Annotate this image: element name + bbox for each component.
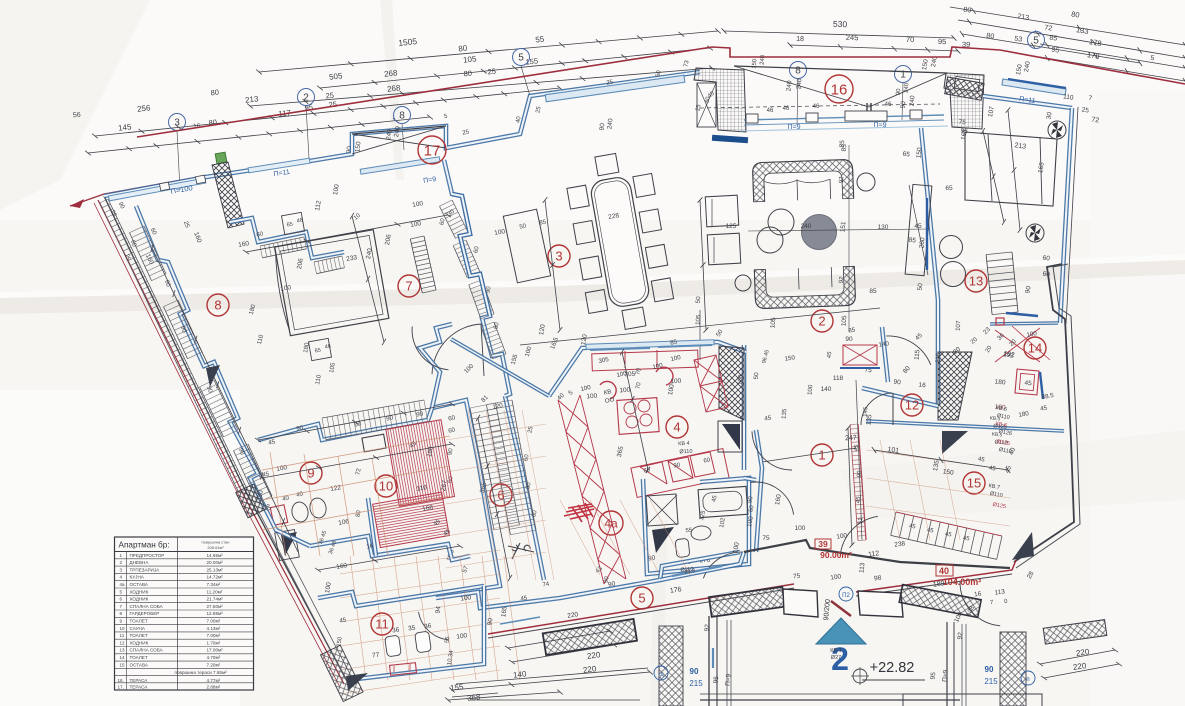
svg-text:80: 80 bbox=[1071, 9, 1081, 19]
svg-text:46: 46 bbox=[813, 104, 820, 110]
svg-text:100: 100 bbox=[586, 393, 598, 401]
svg-text:+22.82: +22.82 bbox=[870, 660, 915, 676]
svg-text:ПРЕДПРОСТОР: ПРЕДПРОСТОР bbox=[130, 553, 165, 558]
svg-text:45: 45 bbox=[856, 496, 863, 504]
svg-text:11: 11 bbox=[120, 633, 125, 638]
svg-text:10: 10 bbox=[120, 626, 126, 631]
svg-text:95: 95 bbox=[938, 37, 947, 46]
svg-text:268: 268 bbox=[384, 68, 399, 78]
svg-text:гд: гд bbox=[658, 672, 664, 678]
svg-text:8: 8 bbox=[120, 611, 123, 616]
svg-text:92: 92 bbox=[839, 276, 846, 284]
svg-text:220: 220 bbox=[586, 650, 601, 661]
svg-text:260: 260 bbox=[919, 237, 927, 249]
svg-text:2: 2 bbox=[303, 93, 309, 104]
svg-text:113: 113 bbox=[994, 588, 1006, 596]
svg-text:40: 40 bbox=[939, 566, 949, 576]
svg-text:САУНА: САУНА bbox=[130, 626, 146, 631]
svg-text:240: 240 bbox=[801, 223, 812, 230]
svg-text:65: 65 bbox=[902, 151, 911, 159]
svg-text:56: 56 bbox=[73, 112, 82, 120]
svg-text:1: 1 bbox=[120, 553, 123, 558]
svg-text:15: 15 bbox=[120, 662, 126, 667]
svg-text:35: 35 bbox=[408, 624, 417, 632]
svg-text:СПАЛНА СОБА: СПАЛНА СОБА bbox=[130, 648, 164, 653]
svg-text:215: 215 bbox=[984, 677, 998, 686]
svg-text:46: 46 bbox=[324, 344, 331, 351]
svg-text:92: 92 bbox=[704, 624, 712, 632]
svg-text:90: 90 bbox=[893, 379, 901, 387]
svg-text:4: 4 bbox=[673, 420, 680, 435]
svg-text:150: 150 bbox=[784, 354, 796, 362]
svg-text:155: 155 bbox=[450, 682, 465, 692]
svg-text:85: 85 bbox=[839, 140, 847, 148]
svg-text:9: 9 bbox=[307, 466, 314, 481]
svg-text:85: 85 bbox=[869, 288, 877, 295]
svg-text:240: 240 bbox=[904, 82, 911, 93]
svg-text:240: 240 bbox=[909, 95, 917, 107]
svg-text:ТОАЛЕТ: ТОАЛЕТ bbox=[130, 633, 148, 638]
svg-text:ХОДНИК: ХОДНИК bbox=[130, 597, 149, 602]
svg-text:150: 150 bbox=[916, 147, 924, 159]
svg-text:17: 17 bbox=[424, 142, 441, 159]
svg-text:245: 245 bbox=[846, 33, 859, 42]
svg-text:16: 16 bbox=[974, 590, 983, 598]
svg-text:100: 100 bbox=[807, 384, 815, 395]
svg-text:80: 80 bbox=[986, 32, 995, 40]
svg-text:95: 95 bbox=[1051, 46, 1060, 54]
svg-text:СПАЛНА СОБА: СПАЛНА СОБА bbox=[130, 604, 164, 609]
svg-text:16.: 16. bbox=[118, 678, 124, 683]
svg-text:3: 3 bbox=[555, 249, 562, 264]
svg-text:180: 180 bbox=[994, 379, 1006, 387]
svg-text:104.00m²: 104.00m² bbox=[943, 577, 982, 587]
svg-text:14.65м²: 14.65м² bbox=[207, 553, 224, 558]
svg-text:7: 7 bbox=[120, 604, 123, 609]
svg-text:90: 90 bbox=[985, 665, 994, 674]
svg-text:46: 46 bbox=[767, 108, 774, 114]
svg-text:135: 135 bbox=[866, 414, 874, 426]
svg-text:36: 36 bbox=[392, 626, 401, 634]
svg-text:4.13м²: 4.13м² bbox=[207, 626, 221, 631]
svg-text:90: 90 bbox=[487, 617, 495, 626]
svg-text:100: 100 bbox=[670, 378, 682, 386]
svg-text:5: 5 bbox=[638, 591, 645, 606]
svg-text:5: 5 bbox=[120, 589, 123, 594]
svg-text:72: 72 bbox=[1044, 24, 1053, 32]
svg-text:60: 60 bbox=[1042, 255, 1051, 263]
svg-text:13: 13 bbox=[969, 274, 983, 289]
svg-text:50: 50 bbox=[753, 372, 761, 380]
svg-text:55: 55 bbox=[535, 35, 545, 45]
svg-text:ТЕРАСА: ТЕРАСА bbox=[130, 678, 149, 683]
svg-text:17.00м²: 17.00м² bbox=[207, 648, 224, 653]
svg-text:72: 72 bbox=[1091, 116, 1100, 124]
svg-text:П2: П2 bbox=[842, 593, 850, 599]
svg-text:80: 80 bbox=[458, 44, 468, 54]
svg-text:8: 8 bbox=[214, 298, 221, 313]
svg-text:90: 90 bbox=[900, 101, 908, 109]
svg-text:25.13м²: 25.13м² bbox=[207, 567, 224, 572]
svg-text:4а: 4а bbox=[120, 582, 126, 587]
svg-text:505: 505 bbox=[329, 71, 344, 81]
svg-text:65: 65 bbox=[314, 348, 321, 355]
svg-text:21.74м²: 21.74м² bbox=[207, 597, 224, 602]
svg-text:140: 140 bbox=[513, 669, 528, 679]
svg-text:98: 98 bbox=[874, 574, 883, 582]
svg-text:површина стан: површина стан bbox=[202, 540, 230, 545]
svg-text:90: 90 bbox=[845, 336, 853, 343]
svg-text:247: 247 bbox=[845, 435, 857, 443]
svg-text:75: 75 bbox=[958, 119, 966, 127]
svg-text:Ø110: Ø110 bbox=[679, 449, 692, 456]
svg-text:53: 53 bbox=[1014, 35, 1023, 43]
svg-text:50: 50 bbox=[695, 296, 703, 304]
svg-text:7.00м²: 7.00м² bbox=[207, 633, 221, 638]
svg-text:213: 213 bbox=[245, 94, 260, 104]
svg-text:7.20м²: 7.20м² bbox=[207, 662, 221, 667]
svg-text:25: 25 bbox=[325, 91, 334, 101]
svg-text:11.20м²: 11.20м² bbox=[207, 589, 223, 594]
svg-text:145: 145 bbox=[118, 122, 133, 132]
svg-text:површина тераси 7.65м²: површина тераси 7.65м² bbox=[175, 670, 228, 675]
svg-text:7.34м²: 7.34м² bbox=[207, 582, 221, 587]
svg-text:8: 8 bbox=[399, 111, 405, 122]
svg-text:50: 50 bbox=[917, 283, 925, 291]
svg-text:7.00м²: 7.00м² bbox=[207, 619, 221, 624]
svg-text:5: 5 bbox=[518, 53, 524, 64]
svg-text:ТОАЛЕТ: ТОАЛЕТ bbox=[130, 655, 148, 660]
svg-text:ТРПЕЗАРИЈА: ТРПЕЗАРИЈА bbox=[130, 567, 161, 572]
svg-text:4.70м²: 4.70м² bbox=[207, 655, 221, 660]
svg-text:п: п bbox=[1026, 677, 1029, 683]
svg-text:220: 220 bbox=[582, 664, 597, 675]
svg-text:25: 25 bbox=[328, 100, 337, 110]
svg-text:ГАРДЕРОБЕР: ГАРДЕРОБЕР bbox=[130, 611, 160, 616]
svg-text:90.00m²: 90.00m² bbox=[820, 550, 852, 560]
svg-text:92: 92 bbox=[839, 176, 846, 184]
svg-text:КВ 4: КВ 4 bbox=[678, 441, 690, 448]
svg-text:80: 80 bbox=[463, 69, 472, 79]
svg-text:П=9: П=9 bbox=[941, 669, 949, 682]
svg-text:4: 4 bbox=[120, 575, 123, 580]
svg-text:530: 530 bbox=[833, 19, 848, 29]
svg-text:1: 1 bbox=[818, 448, 825, 463]
svg-text:46: 46 bbox=[296, 218, 303, 225]
svg-text:12: 12 bbox=[905, 398, 919, 413]
svg-text:60: 60 bbox=[1042, 271, 1051, 279]
svg-text:208.64м²: 208.64м² bbox=[207, 545, 224, 550]
svg-text:ТОАЛЕТ: ТОАЛЕТ bbox=[130, 619, 148, 624]
svg-text:1505: 1505 bbox=[398, 36, 418, 48]
svg-text:25: 25 bbox=[487, 67, 496, 77]
svg-text:25: 25 bbox=[1081, 106, 1090, 114]
svg-text:14: 14 bbox=[1028, 341, 1042, 356]
svg-text:12: 12 bbox=[120, 640, 126, 645]
svg-text:П=9: П=9 bbox=[787, 124, 800, 131]
svg-text:17.: 17. bbox=[118, 685, 124, 690]
svg-text:П=9: П=9 bbox=[873, 122, 886, 129]
svg-text:27.50м²: 27.50м² bbox=[207, 604, 224, 609]
svg-text:240: 240 bbox=[786, 80, 794, 92]
svg-text:15: 15 bbox=[967, 476, 981, 491]
svg-text:118: 118 bbox=[833, 375, 844, 382]
svg-text:80: 80 bbox=[210, 88, 219, 98]
svg-text:КВ.1: КВ.1 bbox=[830, 648, 841, 654]
svg-text:ОСТАВА: ОСТАВА bbox=[130, 662, 149, 667]
svg-text:3: 3 bbox=[120, 567, 123, 572]
svg-text:90: 90 bbox=[690, 667, 699, 676]
svg-text:100: 100 bbox=[619, 387, 631, 395]
svg-text:16: 16 bbox=[831, 81, 848, 98]
svg-text:46: 46 bbox=[885, 102, 892, 108]
svg-text:4.77м²: 4.77м² bbox=[207, 678, 221, 683]
svg-text:105: 105 bbox=[841, 315, 849, 327]
svg-text:20.00м²: 20.00м² bbox=[207, 560, 224, 565]
svg-text:105: 105 bbox=[463, 54, 478, 64]
svg-text:105: 105 bbox=[695, 314, 703, 325]
svg-text:6: 6 bbox=[120, 597, 123, 602]
svg-text:1.70м²: 1.70м² bbox=[207, 640, 221, 645]
svg-text:ОСТАВА: ОСТАВА bbox=[130, 582, 149, 587]
svg-text:90: 90 bbox=[599, 123, 607, 131]
svg-text:85: 85 bbox=[1049, 34, 1058, 42]
svg-text:39: 39 bbox=[818, 539, 828, 549]
svg-text:18: 18 bbox=[796, 36, 804, 43]
svg-text:5: 5 bbox=[1033, 36, 1039, 47]
svg-text:14.72м²: 14.72м² bbox=[207, 575, 224, 580]
svg-text:151: 151 bbox=[840, 221, 848, 233]
svg-text:ХОДНИК: ХОДНИК bbox=[130, 589, 149, 594]
svg-text:П=9: П=9 bbox=[724, 673, 732, 686]
svg-text:Ø27: Ø27 bbox=[831, 655, 841, 661]
svg-text:140: 140 bbox=[878, 340, 890, 348]
svg-text:65: 65 bbox=[945, 185, 953, 192]
svg-text:155: 155 bbox=[525, 56, 538, 66]
svg-text:16: 16 bbox=[918, 382, 926, 390]
svg-text:240: 240 bbox=[606, 118, 614, 130]
svg-text:150: 150 bbox=[752, 58, 759, 69]
svg-text:95: 95 bbox=[713, 676, 721, 684]
svg-text:2.88м²: 2.88м² bbox=[207, 685, 221, 690]
svg-text:113: 113 bbox=[859, 562, 867, 573]
svg-text:256: 256 bbox=[137, 103, 152, 113]
svg-text:9: 9 bbox=[120, 619, 123, 624]
svg-text:10: 10 bbox=[379, 479, 393, 494]
svg-text:45: 45 bbox=[854, 444, 861, 452]
svg-text:2: 2 bbox=[120, 560, 123, 565]
svg-text:65: 65 bbox=[286, 222, 293, 229]
svg-text:36: 36 bbox=[424, 622, 433, 630]
svg-text:45: 45 bbox=[827, 351, 834, 359]
svg-text:2: 2 bbox=[818, 314, 825, 329]
svg-text:268: 268 bbox=[387, 83, 402, 93]
svg-text:107: 107 bbox=[955, 320, 963, 331]
svg-text:115: 115 bbox=[935, 352, 943, 363]
svg-text:100: 100 bbox=[795, 525, 806, 532]
svg-text:215: 215 bbox=[689, 679, 703, 688]
svg-text:45: 45 bbox=[1024, 380, 1032, 388]
svg-text:ТЕРАСА: ТЕРАСА bbox=[130, 685, 149, 690]
svg-text:КУЈНА: КУЈНА bbox=[130, 575, 145, 580]
svg-text:14: 14 bbox=[120, 655, 126, 660]
svg-text:8: 8 bbox=[795, 66, 801, 77]
svg-text:70: 70 bbox=[906, 35, 915, 44]
svg-text:77: 77 bbox=[372, 651, 381, 659]
svg-text:46: 46 bbox=[783, 106, 790, 112]
svg-text:11: 11 bbox=[375, 617, 389, 632]
svg-text:85: 85 bbox=[908, 237, 917, 245]
svg-text:12.88м²: 12.88м² bbox=[207, 611, 224, 616]
svg-text:240: 240 bbox=[760, 54, 767, 65]
svg-text:90: 90 bbox=[896, 88, 903, 96]
svg-text:7: 7 bbox=[405, 279, 412, 294]
svg-text:125: 125 bbox=[726, 223, 737, 230]
svg-text:45: 45 bbox=[914, 223, 922, 230]
svg-text:100: 100 bbox=[737, 374, 745, 385]
svg-text:92: 92 bbox=[957, 632, 965, 640]
svg-text:3: 3 bbox=[174, 118, 180, 129]
svg-text:80: 80 bbox=[963, 6, 972, 14]
svg-text:135: 135 bbox=[781, 408, 789, 419]
svg-text:140: 140 bbox=[821, 386, 832, 393]
svg-text:75: 75 bbox=[762, 535, 770, 542]
svg-text:75: 75 bbox=[793, 572, 802, 580]
svg-text:Апартман бр:: Апартман бр: bbox=[119, 541, 170, 550]
svg-text:ХОДНИК: ХОДНИК bbox=[130, 640, 149, 645]
svg-text:55: 55 bbox=[685, 528, 693, 534]
svg-text:ДНЕВНА: ДНЕВНА bbox=[130, 560, 150, 565]
svg-text:240: 240 bbox=[796, 78, 804, 90]
svg-text:94: 94 bbox=[435, 605, 443, 614]
svg-text:95: 95 bbox=[930, 672, 938, 680]
svg-text:90: 90 bbox=[857, 470, 864, 478]
svg-text:13: 13 bbox=[120, 648, 126, 653]
svg-text:130: 130 bbox=[878, 224, 889, 231]
svg-text:115: 115 bbox=[914, 349, 922, 360]
